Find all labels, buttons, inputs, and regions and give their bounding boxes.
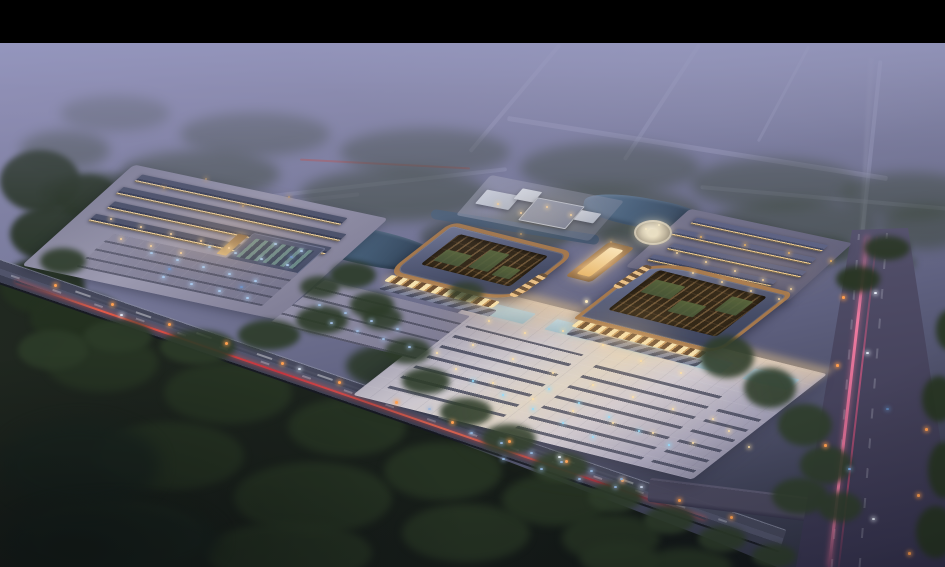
scene-dot xyxy=(925,428,928,431)
scene-dot xyxy=(472,344,474,346)
scene-blob xyxy=(700,336,754,378)
scene-dot xyxy=(451,421,454,424)
scene-dot xyxy=(254,280,257,282)
scene-dot xyxy=(592,384,594,386)
scene-dot xyxy=(748,446,750,448)
scene-dot xyxy=(638,430,640,432)
scene-dot xyxy=(180,252,182,254)
scene-dot xyxy=(565,460,568,463)
scene-dot xyxy=(242,205,244,207)
courtyard-green xyxy=(714,296,753,315)
scene-dot xyxy=(338,381,341,384)
scene-dot xyxy=(520,212,522,214)
scene-dot xyxy=(668,444,670,446)
scene-dot xyxy=(645,228,647,230)
scene-dot xyxy=(205,178,207,180)
scene-dot xyxy=(620,478,623,480)
scene-dot xyxy=(170,233,172,235)
scene-dot xyxy=(492,382,494,384)
scene-dot xyxy=(652,432,654,434)
scene-dot xyxy=(300,250,303,252)
scene-dot xyxy=(546,206,548,208)
scene-dot xyxy=(721,281,723,283)
scene-dot xyxy=(824,444,827,447)
scene-dot xyxy=(614,486,617,488)
scene-blob xyxy=(448,282,484,302)
scene-dot xyxy=(608,416,610,418)
courtyard-green xyxy=(433,249,472,266)
scene-dot xyxy=(455,368,457,370)
scene-dot xyxy=(848,468,851,470)
scene-dot xyxy=(602,344,604,346)
scene-dot xyxy=(344,312,347,314)
scene-dot xyxy=(168,268,171,270)
scene-dot xyxy=(558,456,561,458)
scene-dot xyxy=(200,240,202,242)
scene-dot xyxy=(532,398,534,400)
scene-dot xyxy=(585,300,588,303)
scene-dot xyxy=(680,372,682,374)
scene-dot xyxy=(734,270,736,272)
scene-blob xyxy=(300,276,340,298)
scene-dot xyxy=(382,338,385,340)
scene xyxy=(0,0,945,567)
scene-blob xyxy=(18,330,88,370)
scene-blob xyxy=(818,492,862,522)
scene-dot xyxy=(676,252,678,254)
scene-blob xyxy=(160,330,236,364)
scene-dot xyxy=(176,259,179,261)
scene-dot xyxy=(728,430,730,432)
scene-dot xyxy=(524,332,526,334)
scene-dot xyxy=(500,442,503,444)
scene-dot xyxy=(370,320,373,322)
scene-dot xyxy=(705,261,707,263)
scene-dot xyxy=(298,368,301,370)
scene-dot xyxy=(562,422,564,424)
pavilion-west-courtyard xyxy=(420,234,548,287)
scene-dot xyxy=(790,288,792,290)
scene-dot xyxy=(240,286,243,288)
scene-dot xyxy=(712,418,714,420)
scene-blob xyxy=(60,95,170,131)
scene-dot xyxy=(532,408,534,410)
scene-dot xyxy=(190,283,193,285)
scene-dot xyxy=(330,322,333,324)
scene-dot xyxy=(678,499,681,502)
scene-dot xyxy=(470,432,473,434)
scene-dot xyxy=(540,468,543,470)
scene-dot xyxy=(552,372,554,374)
scene-dot xyxy=(830,260,832,262)
scene-blob xyxy=(752,544,796,567)
courtyard-green xyxy=(491,265,520,279)
scene-dot xyxy=(428,408,431,410)
scene-blob xyxy=(84,320,152,352)
scene-dot xyxy=(120,314,123,316)
scene-dot xyxy=(590,470,593,472)
scene-dot xyxy=(778,298,780,300)
scene-blob xyxy=(644,506,694,534)
letterbox-top-bar xyxy=(0,0,945,43)
scene-dot xyxy=(225,342,228,345)
scene-blob xyxy=(296,306,348,334)
scene-dot xyxy=(202,266,205,268)
scene-dot xyxy=(502,458,505,460)
scene-dot xyxy=(150,245,152,247)
scene-dot xyxy=(436,352,438,354)
scene-dot xyxy=(917,494,920,497)
scene-dot xyxy=(162,276,165,278)
scene-dot xyxy=(140,226,142,228)
scene-dot xyxy=(842,296,845,299)
scene-blob xyxy=(482,424,536,454)
scene-dot xyxy=(120,238,122,240)
scene-dot xyxy=(408,346,411,348)
scene-blob xyxy=(778,404,832,446)
scene-dot xyxy=(610,241,612,243)
scene-dot xyxy=(110,218,112,220)
scene-dot xyxy=(488,320,490,322)
scene-dot xyxy=(234,252,237,254)
scene-dot xyxy=(692,272,694,274)
scene-dot xyxy=(692,442,694,444)
scene-dot xyxy=(578,402,580,404)
scene-blob xyxy=(836,266,880,292)
scene-dot xyxy=(260,258,263,260)
scene-dot xyxy=(502,394,504,396)
scene-dot xyxy=(872,518,875,520)
scene-dot xyxy=(54,284,57,287)
scene-dot xyxy=(163,187,165,189)
scene-blob xyxy=(440,398,492,426)
circular-plaza xyxy=(634,220,672,245)
scene-dot xyxy=(836,364,839,367)
scene-dot xyxy=(572,410,574,412)
scene-dot xyxy=(228,273,231,275)
scene-dot xyxy=(908,552,911,555)
scene-dot xyxy=(520,233,522,235)
scene-dot xyxy=(288,196,290,198)
scene-dot xyxy=(286,264,289,266)
scene-dot xyxy=(228,247,230,249)
scene-dot xyxy=(640,360,642,362)
scene-dot xyxy=(672,408,674,410)
scene-blob xyxy=(362,306,402,330)
scene-dot xyxy=(658,224,660,226)
scene-dot xyxy=(318,304,321,306)
scene-dot xyxy=(512,358,514,360)
scene-dot xyxy=(640,486,643,488)
scene-dot xyxy=(700,236,702,238)
courtyard-green xyxy=(667,300,706,317)
architectural-rendering xyxy=(0,0,945,567)
scene-dot xyxy=(530,452,533,454)
scene-dot xyxy=(168,323,171,326)
scene-dot xyxy=(866,352,869,354)
scene-dot xyxy=(548,388,550,390)
scene-dot xyxy=(750,290,752,292)
scene-dot xyxy=(290,256,293,258)
scene-dot xyxy=(246,297,249,299)
scene-blob xyxy=(744,368,796,408)
scene-dot xyxy=(592,436,594,438)
scene-dot xyxy=(356,330,359,332)
scene-dot xyxy=(874,292,877,294)
scene-dot xyxy=(396,328,399,330)
scene-dot xyxy=(274,243,277,245)
scene-dot xyxy=(508,440,511,443)
courtyard-green xyxy=(640,280,685,300)
scene-blob xyxy=(864,236,910,260)
scene-blob xyxy=(385,338,431,364)
scene-blob xyxy=(0,420,160,510)
scene-dot xyxy=(218,290,221,292)
scene-dot xyxy=(281,362,284,365)
scene-dot xyxy=(395,401,398,404)
scene-dot xyxy=(497,203,499,205)
scene-dot xyxy=(150,252,153,254)
scene-dot xyxy=(632,396,634,398)
scene-dot xyxy=(762,279,764,281)
scene-dot xyxy=(562,330,564,332)
scene-blob xyxy=(238,320,300,350)
scene-dot xyxy=(570,214,572,216)
scene-blob xyxy=(402,368,450,394)
scene-dot xyxy=(886,408,889,410)
scene-dot xyxy=(560,461,563,463)
scene-dot xyxy=(612,422,614,424)
scene-dot xyxy=(472,380,474,382)
scene-dot xyxy=(111,303,114,306)
scene-dot xyxy=(208,246,211,248)
scene-blob xyxy=(698,526,746,552)
scene-blob xyxy=(40,248,86,274)
scene-dot xyxy=(578,478,581,480)
scene-dot xyxy=(730,516,733,519)
scene-dot xyxy=(744,244,746,246)
scene-dot xyxy=(788,252,790,254)
